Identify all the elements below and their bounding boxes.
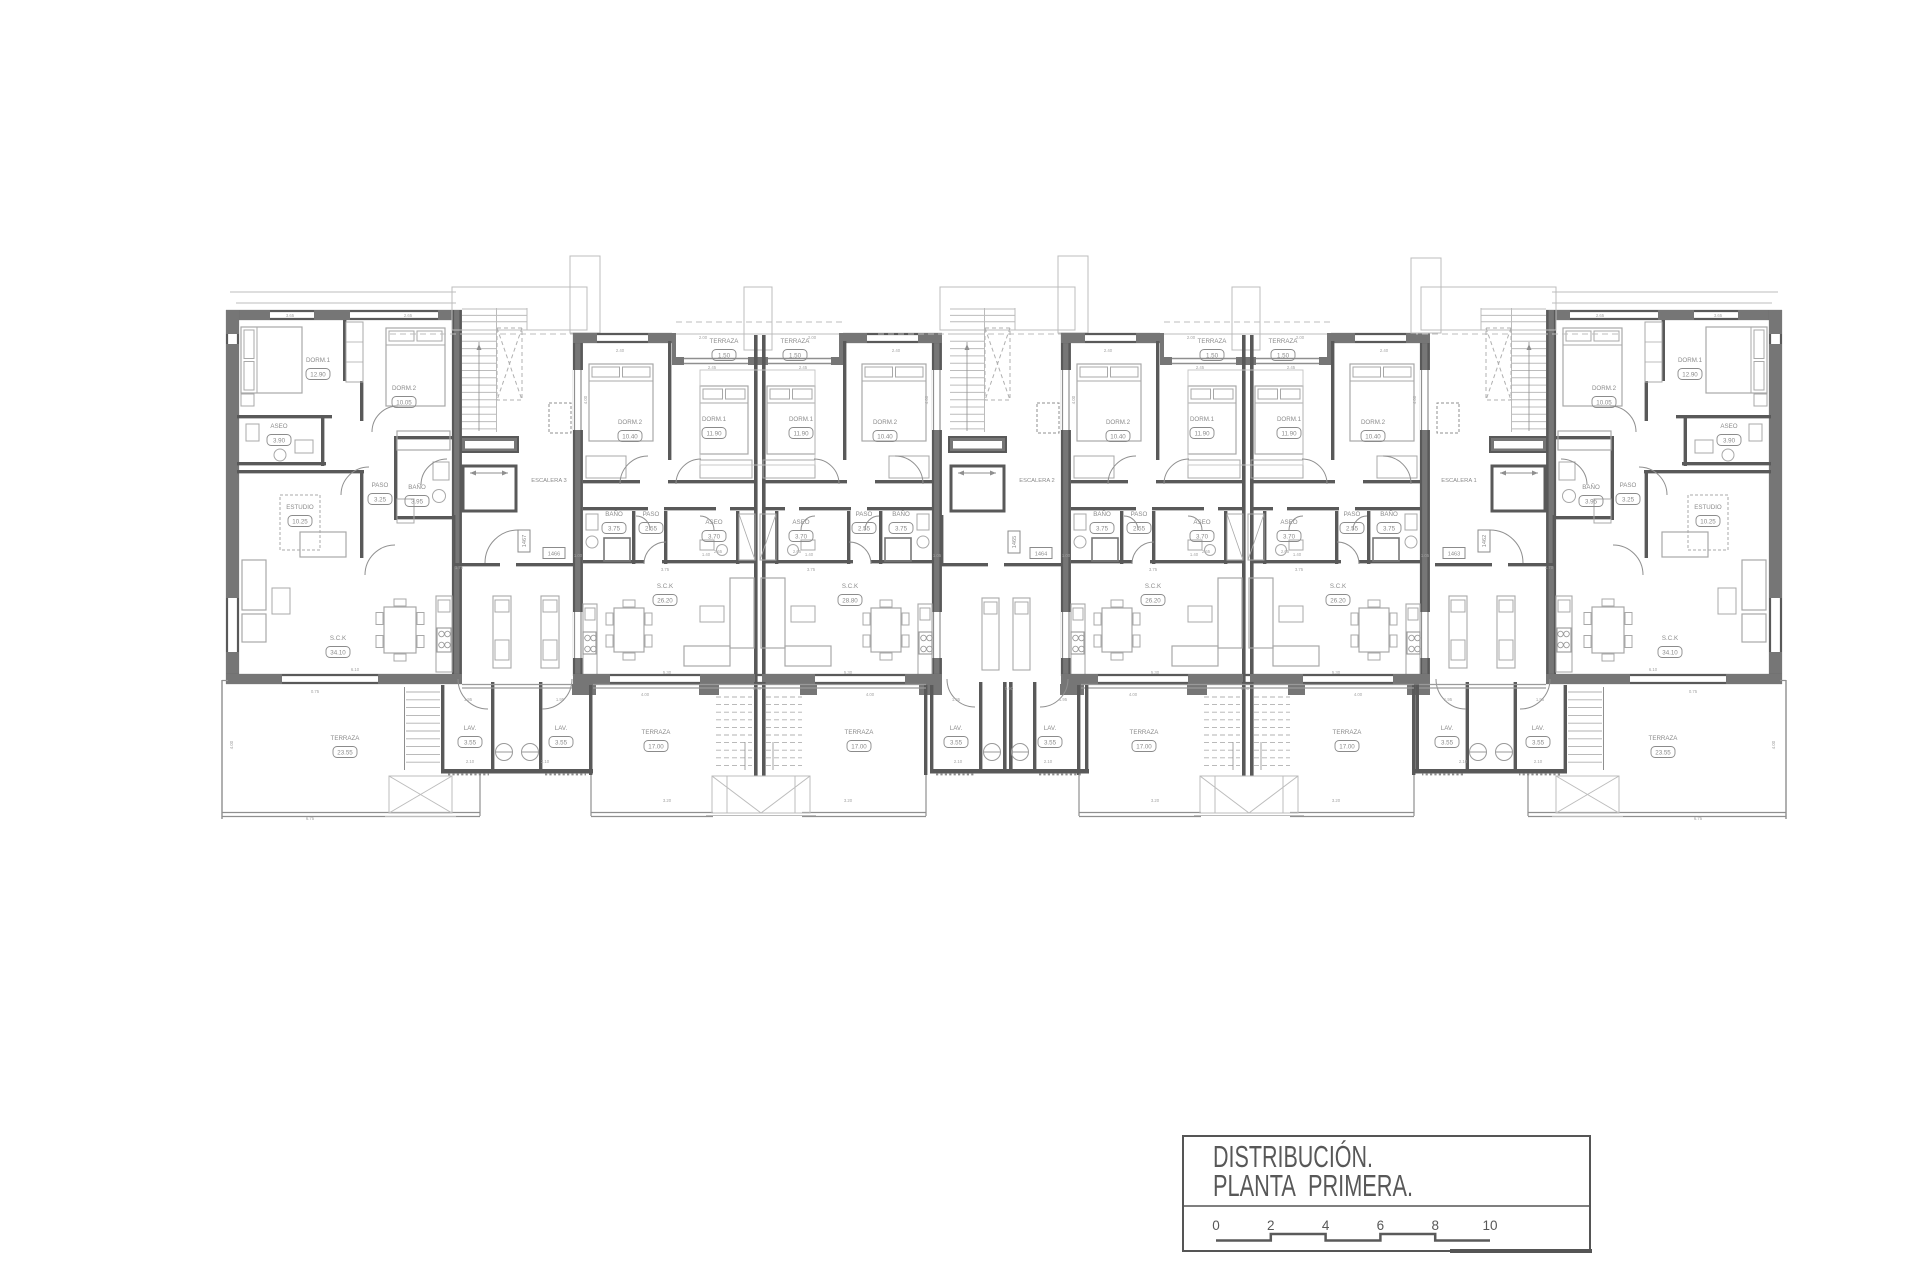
svg-text:DORM.2: DORM.2 (1592, 385, 1617, 392)
svg-text:2.10: 2.10 (541, 759, 550, 764)
svg-text:ESCALERA 3: ESCALERA 3 (531, 478, 566, 484)
svg-text:0.75: 0.75 (311, 689, 320, 694)
svg-text:2: 2 (1267, 1218, 1275, 1233)
svg-text:PASO: PASO (1344, 511, 1361, 518)
svg-text:1465: 1465 (1012, 536, 1018, 548)
svg-text:3.70: 3.70 (795, 534, 808, 541)
svg-text:2.45: 2.45 (708, 365, 717, 370)
svg-text:2.10: 2.10 (1044, 759, 1053, 764)
svg-text:S.C.K: S.C.K (1145, 583, 1162, 590)
svg-text:1.95: 1.95 (464, 697, 473, 702)
svg-text:1.40: 1.40 (1293, 552, 1302, 557)
svg-text:5.30: 5.30 (1151, 670, 1160, 675)
svg-text:1.40: 1.40 (1190, 552, 1199, 557)
svg-text:4.00: 4.00 (1412, 395, 1417, 404)
svg-text:1.95: 1.95 (556, 697, 565, 702)
svg-text:ESCALERA 2: ESCALERA 2 (1019, 478, 1054, 484)
svg-text:PASO: PASO (1131, 511, 1148, 518)
svg-text:10.40: 10.40 (877, 434, 893, 441)
svg-text:4.00: 4.00 (583, 395, 588, 404)
svg-text:1.95: 1.95 (1059, 697, 1068, 702)
svg-text:2.45: 2.45 (1287, 365, 1296, 370)
svg-text:DORM.2: DORM.2 (618, 419, 643, 426)
svg-text:2.10: 2.10 (954, 759, 963, 764)
svg-text:S.C.K: S.C.K (330, 635, 347, 642)
svg-text:ASEO: ASEO (1280, 519, 1297, 526)
svg-text:DORM.1: DORM.1 (789, 416, 814, 423)
svg-text:4.00: 4.00 (229, 740, 234, 749)
svg-text:3.20: 3.20 (844, 798, 853, 803)
svg-text:2.65: 2.65 (1202, 549, 1211, 554)
svg-text:10.40: 10.40 (622, 434, 638, 441)
svg-text:23.55: 23.55 (337, 750, 353, 757)
svg-text:3.70: 3.70 (1283, 534, 1296, 541)
svg-text:10.40: 10.40 (1110, 434, 1126, 441)
svg-text:1467: 1467 (522, 535, 528, 547)
svg-text:3.75: 3.75 (895, 526, 908, 533)
svg-text:3.20: 3.20 (1332, 798, 1341, 803)
svg-text:4.00: 4.00 (1354, 692, 1363, 697)
svg-text:S.C.K: S.C.K (657, 583, 674, 590)
svg-text:11.90: 11.90 (1281, 431, 1297, 438)
svg-text:4.00: 4.00 (641, 692, 650, 697)
svg-text:6.75: 6.75 (306, 816, 315, 821)
svg-text:28.80: 28.80 (842, 598, 858, 605)
svg-text:0.90: 0.90 (753, 686, 762, 691)
svg-text:10: 10 (1482, 1218, 1497, 1233)
svg-text:BAÑO: BAÑO (1380, 511, 1398, 518)
svg-text:TERRAZA: TERRAZA (710, 338, 740, 345)
svg-text:DORM.2: DORM.2 (1106, 419, 1131, 426)
svg-text:1.50: 1.50 (789, 353, 802, 360)
svg-text:DORM.2: DORM.2 (392, 385, 417, 392)
svg-text:3.90: 3.90 (273, 438, 286, 445)
svg-text:ASEO: ASEO (1720, 423, 1737, 430)
svg-text:2.10: 2.10 (466, 759, 475, 764)
svg-text:3.95: 3.95 (1585, 499, 1598, 506)
svg-text:PASO: PASO (856, 511, 873, 518)
svg-text:1.95: 1.95 (1536, 697, 1545, 702)
svg-text:3.55: 3.55 (950, 740, 963, 747)
svg-text:2.40: 2.40 (616, 348, 625, 353)
svg-text:2.00: 2.00 (808, 335, 817, 340)
svg-text:ASEO: ASEO (1193, 519, 1210, 526)
svg-text:3.25: 3.25 (1622, 497, 1635, 504)
svg-text:ASEO: ASEO (270, 423, 287, 430)
svg-text:2.65: 2.65 (1281, 549, 1290, 554)
svg-text:6.75: 6.75 (1694, 816, 1703, 821)
svg-text:LAV.: LAV. (1441, 725, 1454, 732)
svg-text:4.00: 4.00 (866, 692, 875, 697)
svg-text:5.30: 5.30 (1332, 670, 1341, 675)
svg-text:BAÑO: BAÑO (892, 511, 910, 518)
svg-text:4: 4 (1322, 1218, 1330, 1233)
svg-text:10.40: 10.40 (1365, 434, 1381, 441)
svg-text:2.40: 2.40 (1380, 348, 1389, 353)
svg-text:DORM.1: DORM.1 (1678, 357, 1703, 364)
svg-text:1.70: 1.70 (1545, 565, 1554, 570)
svg-text:3.70: 3.70 (1196, 534, 1209, 541)
svg-text:0.90: 0.90 (1005, 686, 1014, 691)
svg-text:DORM.1: DORM.1 (306, 357, 331, 364)
svg-text:LAV.: LAV. (1044, 725, 1057, 732)
svg-text:3.75: 3.75 (1295, 567, 1304, 572)
svg-text:17.00: 17.00 (648, 744, 664, 751)
svg-text:34.10: 34.10 (1662, 650, 1678, 657)
svg-text:12.90: 12.90 (310, 372, 326, 379)
svg-text:17.00: 17.00 (1339, 744, 1355, 751)
svg-text:TERRAZA: TERRAZA (642, 729, 672, 736)
svg-text:11.90: 11.90 (1194, 431, 1210, 438)
svg-text:2.45: 2.45 (799, 365, 808, 370)
svg-text:BAÑO: BAÑO (1093, 511, 1111, 518)
svg-text:3.75: 3.75 (608, 526, 621, 533)
svg-text:3.20: 3.20 (663, 798, 672, 803)
svg-text:S.C.K: S.C.K (842, 583, 859, 590)
svg-text:2.55: 2.55 (858, 526, 871, 533)
svg-text:PASO: PASO (1620, 482, 1637, 489)
svg-text:1464: 1464 (1035, 552, 1047, 558)
svg-text:4.00: 4.00 (924, 395, 929, 404)
svg-text:3.55: 3.55 (1044, 740, 1057, 747)
svg-text:LAV.: LAV. (464, 725, 477, 732)
svg-text:3.70: 3.70 (708, 534, 721, 541)
svg-text:4.00: 4.00 (1771, 740, 1776, 749)
svg-text:DORM.2: DORM.2 (1361, 419, 1386, 426)
svg-text:0.90: 0.90 (1241, 686, 1250, 691)
svg-text:0.75: 0.75 (1689, 689, 1698, 694)
svg-text:1.00: 1.00 (574, 553, 583, 558)
svg-text:3.75: 3.75 (807, 567, 816, 572)
svg-text:1462: 1462 (1482, 535, 1488, 547)
svg-text:LAV.: LAV. (1532, 725, 1545, 732)
svg-text:17.00: 17.00 (1136, 744, 1152, 751)
svg-text:TERRAZA: TERRAZA (1333, 729, 1363, 736)
svg-text:1.00: 1.00 (1062, 553, 1071, 558)
svg-text:3.75: 3.75 (1149, 567, 1158, 572)
svg-text:2.55: 2.55 (645, 526, 658, 533)
svg-text:DORM.1: DORM.1 (1190, 416, 1215, 423)
svg-text:3.55: 3.55 (1441, 740, 1454, 747)
svg-text:4.00: 4.00 (1129, 692, 1138, 697)
svg-text:10.05: 10.05 (1596, 400, 1612, 407)
svg-text:2.00: 2.00 (1187, 335, 1196, 340)
svg-text:5.30: 5.30 (663, 670, 672, 675)
svg-text:1.95: 1.95 (952, 697, 961, 702)
svg-text:17.00: 17.00 (851, 744, 867, 751)
svg-text:1.05: 1.05 (1421, 553, 1430, 558)
svg-text:TERRAZA: TERRAZA (1198, 338, 1228, 345)
svg-text:1.40: 1.40 (805, 552, 814, 557)
svg-text:2.40: 2.40 (892, 348, 901, 353)
svg-text:DORM.1: DORM.1 (702, 416, 727, 423)
svg-text:TERRAZA: TERRAZA (845, 729, 875, 736)
svg-text:S.C.K: S.C.K (1662, 635, 1679, 642)
svg-text:1.70: 1.70 (455, 565, 464, 570)
svg-text:4.00: 4.00 (1071, 395, 1076, 404)
svg-text:10.05: 10.05 (396, 400, 412, 407)
svg-text:1.50: 1.50 (718, 353, 731, 360)
svg-text:PASO: PASO (372, 482, 389, 489)
svg-text:3.55: 3.55 (1532, 740, 1545, 747)
svg-text:23.55: 23.55 (1655, 750, 1671, 757)
svg-text:2.00: 2.00 (699, 335, 708, 340)
svg-text:1.50: 1.50 (1206, 353, 1219, 360)
svg-text:LAV.: LAV. (555, 725, 568, 732)
svg-text:3.25: 3.25 (374, 497, 387, 504)
svg-text:10.25: 10.25 (1700, 519, 1716, 526)
svg-text:1.40: 1.40 (702, 552, 711, 557)
svg-text:2.10: 2.10 (1459, 759, 1468, 764)
svg-text:2.65: 2.65 (793, 549, 802, 554)
svg-text:5.30: 5.30 (844, 670, 853, 675)
svg-text:10.25: 10.25 (292, 519, 308, 526)
svg-text:0: 0 (1212, 1218, 1220, 1233)
svg-text:2.55: 2.55 (1133, 526, 1146, 533)
svg-text:TERRAZA: TERRAZA (331, 735, 361, 742)
svg-text:34.10: 34.10 (330, 650, 346, 657)
svg-text:LAV.: LAV. (950, 725, 963, 732)
svg-text:3.65: 3.65 (286, 313, 295, 318)
svg-text:1.95: 1.95 (1444, 697, 1453, 702)
svg-text:BAÑO: BAÑO (605, 511, 623, 518)
svg-text:2.45: 2.45 (1196, 365, 1205, 370)
svg-text:1.50: 1.50 (1277, 353, 1290, 360)
svg-text:6.10: 6.10 (351, 667, 360, 672)
svg-text:2.65: 2.65 (1596, 313, 1605, 318)
svg-text:3.90: 3.90 (1723, 438, 1736, 445)
svg-text:3.65: 3.65 (1714, 313, 1723, 318)
svg-text:1463: 1463 (1448, 552, 1460, 558)
svg-text:2.40: 2.40 (1104, 348, 1113, 353)
svg-text:PLANTA PRIMERA.: PLANTA PRIMERA. (1213, 1168, 1413, 1203)
svg-text:2.65: 2.65 (404, 313, 413, 318)
svg-text:TERRAZA: TERRAZA (781, 338, 811, 345)
svg-text:DORM.2: DORM.2 (873, 419, 898, 426)
svg-text:11.90: 11.90 (706, 431, 722, 438)
svg-text:3.95: 3.95 (411, 499, 424, 506)
svg-text:3.20: 3.20 (1151, 798, 1160, 803)
svg-text:TERRAZA: TERRAZA (1130, 729, 1160, 736)
svg-text:3.75: 3.75 (661, 567, 670, 572)
svg-text:2.10: 2.10 (1534, 759, 1543, 764)
svg-text:11.90: 11.90 (793, 431, 809, 438)
svg-text:BAÑO: BAÑO (1582, 484, 1600, 491)
svg-text:8: 8 (1431, 1218, 1439, 1233)
svg-text:26.20: 26.20 (1145, 598, 1161, 605)
svg-text:6: 6 (1377, 1218, 1385, 1233)
svg-text:ASEO: ASEO (792, 519, 809, 526)
svg-text:S.C.K: S.C.K (1330, 583, 1347, 590)
svg-text:3.55: 3.55 (464, 740, 477, 747)
svg-text:2.00: 2.00 (1296, 335, 1305, 340)
svg-text:6.10: 6.10 (1649, 667, 1658, 672)
svg-text:26.20: 26.20 (1330, 598, 1346, 605)
svg-text:2.65: 2.65 (714, 549, 723, 554)
svg-text:PASO: PASO (643, 511, 660, 518)
svg-text:DORM.1: DORM.1 (1277, 416, 1302, 423)
svg-text:TERRAZA: TERRAZA (1269, 338, 1299, 345)
svg-text:BAÑO: BAÑO (408, 484, 426, 491)
svg-text:ESTUDIO: ESTUDIO (1694, 504, 1722, 511)
svg-text:3.75: 3.75 (1383, 526, 1396, 533)
svg-text:3.75: 3.75 (1096, 526, 1109, 533)
svg-text:12.90: 12.90 (1682, 372, 1698, 379)
svg-text:26.20: 26.20 (657, 598, 673, 605)
svg-text:1.05: 1.05 (933, 553, 942, 558)
svg-text:2.55: 2.55 (1346, 526, 1359, 533)
svg-text:TERRAZA: TERRAZA (1649, 735, 1679, 742)
svg-text:ASEO: ASEO (705, 519, 722, 526)
svg-text:3.55: 3.55 (555, 740, 568, 747)
svg-text:ESCALERA 1: ESCALERA 1 (1441, 478, 1476, 484)
svg-text:ESTUDIO: ESTUDIO (286, 504, 314, 511)
svg-text:1466: 1466 (548, 552, 560, 558)
